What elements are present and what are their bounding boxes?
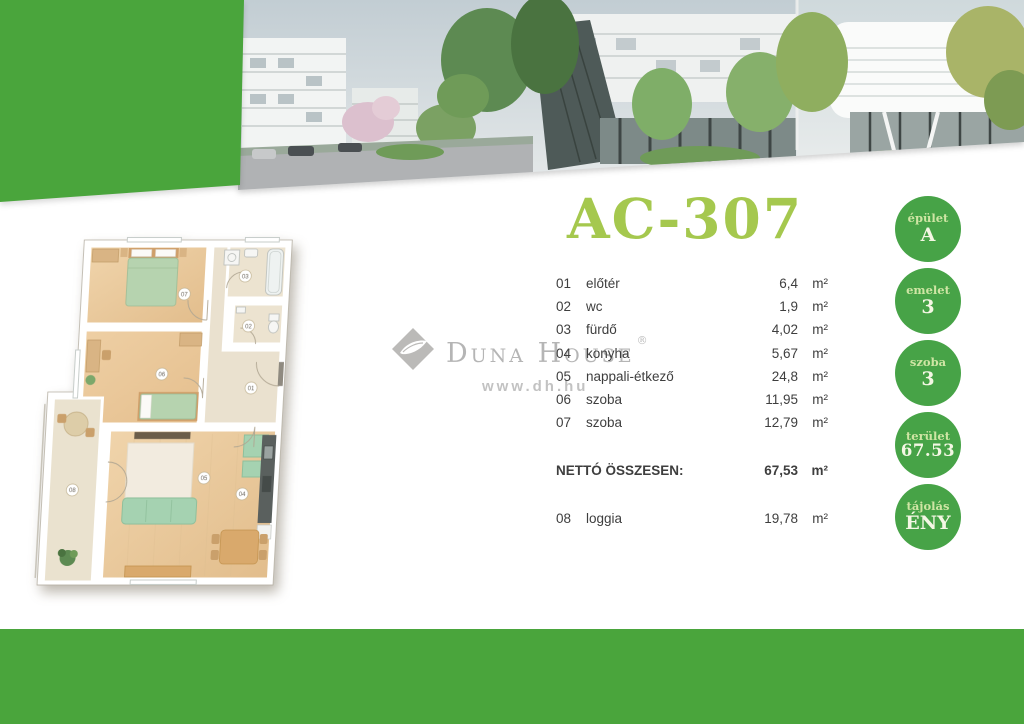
floor-plan-drawing: 01 02 03 04 05 06 07 08 — [29, 228, 300, 606]
room-number: 07 — [556, 415, 586, 430]
area-unit: m² — [798, 299, 828, 314]
net-total-area: 67,53 — [740, 463, 798, 478]
room-name: konyha — [586, 346, 740, 361]
badge-epulet: épület A — [895, 196, 961, 262]
tag-konyha: 04 — [239, 492, 247, 498]
tag-nappali: 05 — [200, 476, 208, 482]
room-area: 6,4 — [740, 276, 798, 291]
room-name: szoba — [586, 392, 740, 407]
room-row: 01 előtér 6,4 m² — [556, 272, 828, 295]
room-name: wc — [586, 299, 740, 314]
area-unit: m² — [798, 276, 828, 291]
room-number: 03 — [556, 322, 586, 337]
room-row: 07 szoba 12,79 m² — [556, 411, 828, 434]
room-row: 02 wc 1,9 m² — [556, 295, 828, 318]
badge-value: 3 — [921, 369, 934, 390]
badge-value: ÉNY — [905, 513, 950, 534]
unit-code-title: AC-307 — [567, 190, 803, 248]
green-banner-wedge — [0, 0, 260, 210]
photo-courtyard-building — [511, 0, 796, 170]
area-unit: m² — [798, 392, 828, 407]
room-row: 05 nappali-étkező 24,8 m² — [556, 365, 828, 388]
area-unit: m² — [798, 463, 828, 478]
tag-loggia: 08 — [69, 488, 77, 494]
tag-wc: 02 — [245, 324, 253, 330]
room-number: 08 — [556, 511, 586, 526]
room-area: 4,02 — [740, 322, 798, 337]
tag-szoba-top: 07 — [181, 292, 189, 298]
badge-value: 67.53 — [901, 442, 955, 460]
room-row: 08 loggia 19,78 m² — [556, 507, 828, 530]
badge-value: A — [921, 225, 936, 246]
net-total-row: NETTÓ ÖSSZESEN: 67,53 m² — [556, 459, 828, 482]
room-name: loggia — [586, 511, 740, 526]
area-unit: m² — [798, 511, 828, 526]
room-name: fürdő — [586, 322, 740, 337]
room-number: 05 — [556, 369, 586, 384]
badge-value: 3 — [921, 297, 934, 318]
room-number: 06 — [556, 392, 586, 407]
area-unit: m² — [798, 415, 828, 430]
room-name: szoba — [586, 415, 740, 430]
badge-tajolas: tájolás ÉNY — [895, 484, 961, 550]
room-area: 1,9 — [740, 299, 798, 314]
duna-house-diamond-leaf-icon — [390, 326, 436, 377]
floor-plan: 01 02 03 04 05 06 07 08 — [29, 228, 300, 606]
tag-szoba-middle: 06 — [158, 372, 166, 378]
room-row: 04 konyha 5,67 m² — [556, 342, 828, 365]
badge-label: emelet — [906, 284, 950, 297]
room-name: nappali-étkező — [586, 369, 740, 384]
room-number: 02 — [556, 299, 586, 314]
room-name: előtér — [586, 276, 740, 291]
badge-emelet: emelet 3 — [895, 268, 961, 334]
room-list: 01 előtér 6,4 m² 02 wc 1,9 m² 03 fürdő 4… — [556, 272, 828, 530]
tag-furdo: 03 — [242, 274, 250, 280]
room-row: 03 fürdő 4,02 m² — [556, 318, 828, 341]
badge-szoba: szoba 3 — [895, 340, 961, 406]
area-unit: m² — [798, 346, 828, 361]
badge-label: épület — [908, 212, 949, 225]
room-area: 19,78 — [740, 511, 798, 526]
room-row: 06 szoba 11,95 m² — [556, 388, 828, 411]
room-area: 24,8 — [740, 369, 798, 384]
tag-eloter: 01 — [247, 386, 255, 392]
badge-label: szoba — [910, 356, 946, 369]
badge-terulet: terület 67.53 — [895, 412, 961, 478]
area-unit: m² — [798, 322, 828, 337]
area-unit: m² — [798, 369, 828, 384]
brochure-page: 01 02 03 04 05 06 07 08 — [0, 0, 1024, 724]
green-footer-band — [0, 629, 1024, 724]
net-total-label: NETTÓ ÖSSZESEN: — [556, 463, 740, 478]
header-banner — [0, 0, 1024, 206]
info-badges: épület A emelet 3 szoba 3 terület 67.53 … — [895, 196, 961, 556]
room-number: 01 — [556, 276, 586, 291]
room-number: 04 — [556, 346, 586, 361]
room-area: 11,95 — [740, 392, 798, 407]
room-area: 12,79 — [740, 415, 798, 430]
room-area: 5,67 — [740, 346, 798, 361]
badge-label: tájolás — [907, 500, 950, 513]
